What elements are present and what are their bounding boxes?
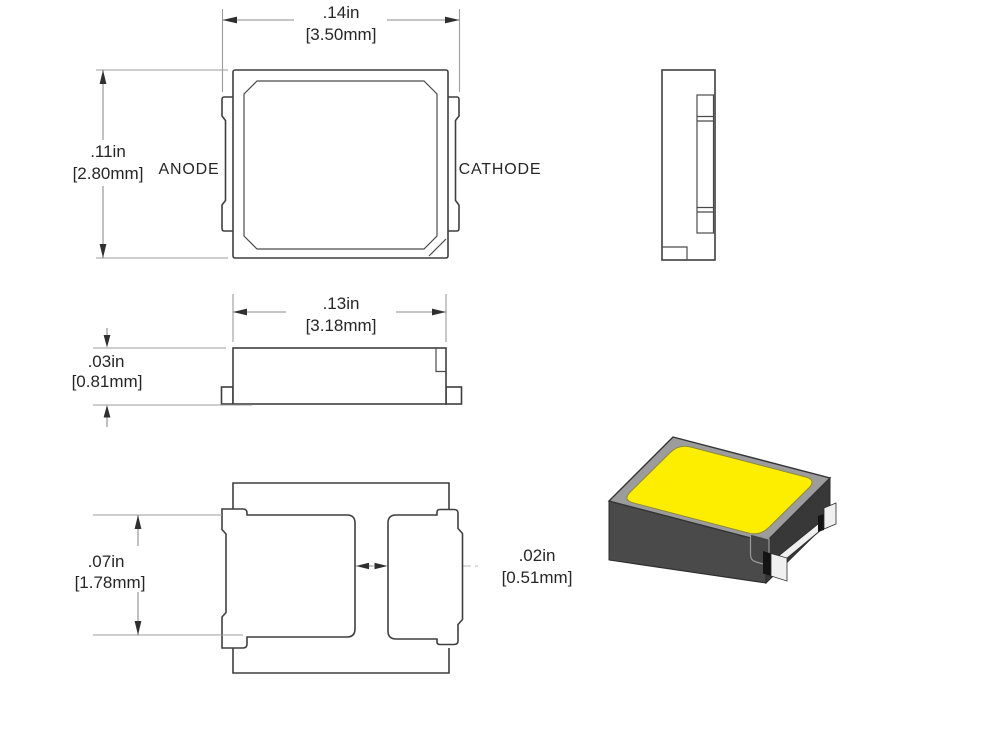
dim-arrow-up [135, 515, 142, 529]
cathode-label: CATHODE [459, 161, 542, 178]
dim-arrow-right [432, 309, 446, 316]
side-view-right-foot [446, 387, 462, 404]
anode-label: ANODE [159, 161, 220, 178]
dim-arrow-down [100, 244, 107, 258]
dim-top-height-mm: [2.80mm] [73, 164, 144, 183]
dim-pad-height: .07in [1.78mm] [75, 515, 243, 635]
side-view [222, 348, 462, 404]
bottom-view [222, 483, 478, 673]
led-3d-terminal-gap-upper [818, 514, 824, 532]
dim-top-width-in: .14in [323, 3, 360, 22]
dim-pad-gap-in: .02in [519, 546, 556, 565]
dim-arrow-right [445, 17, 460, 24]
led-3d-terminal-gap-lower [763, 551, 771, 576]
dim-arrow-left [233, 309, 247, 316]
end-view-outline [662, 70, 715, 260]
dim-top-width-mm: [3.50mm] [306, 25, 377, 44]
side-view-left-foot [222, 387, 234, 404]
dim-side-thickness-in: .03in [88, 352, 125, 371]
dim-pad-height-in: .07in [88, 552, 125, 571]
led-3d-terminal-block-upper [824, 503, 836, 529]
dim-arrow-down [104, 335, 111, 348]
dim-side-thickness: .03in [0.81mm] [72, 328, 252, 427]
end-view [662, 70, 715, 260]
led-dimension-drawing: ANODE CATHODE .14in [3.50mm] .11in [2.80… [0, 0, 1000, 741]
dim-arrow-down [135, 621, 142, 635]
dim-arrow-up [100, 70, 107, 84]
dim-arrow-right [375, 563, 388, 570]
dim-side-width-mm: [3.18mm] [306, 316, 377, 335]
dim-side-width-in: .13in [323, 294, 360, 313]
dim-top-height-in: .11in [90, 142, 126, 161]
dim-pad-height-mm: [1.78mm] [75, 573, 146, 592]
drawing-svg: ANODE CATHODE .14in [3.50mm] .11in [2.80… [0, 0, 1000, 741]
dim-arrow-up [104, 405, 111, 418]
top-view-package-outline [233, 70, 448, 258]
dim-arrow-left [223, 17, 238, 24]
led-3d-terminal-block-lower [771, 554, 787, 582]
bottom-view-anode-pad [222, 509, 355, 648]
top-view-cathode-tab [448, 97, 459, 231]
dim-arrow-left [356, 563, 369, 570]
dim-side-width: .13in [3.18mm] [233, 294, 446, 342]
led-3d-render [609, 437, 836, 583]
top-view: ANODE CATHODE [159, 70, 542, 258]
bottom-view-cathode-pad [388, 510, 463, 645]
dim-pad-gap-mm: [0.51mm] [502, 568, 573, 587]
top-view-anode-tab [222, 97, 233, 231]
side-view-body [233, 348, 446, 404]
dim-side-thickness-mm: [0.81mm] [72, 372, 143, 391]
